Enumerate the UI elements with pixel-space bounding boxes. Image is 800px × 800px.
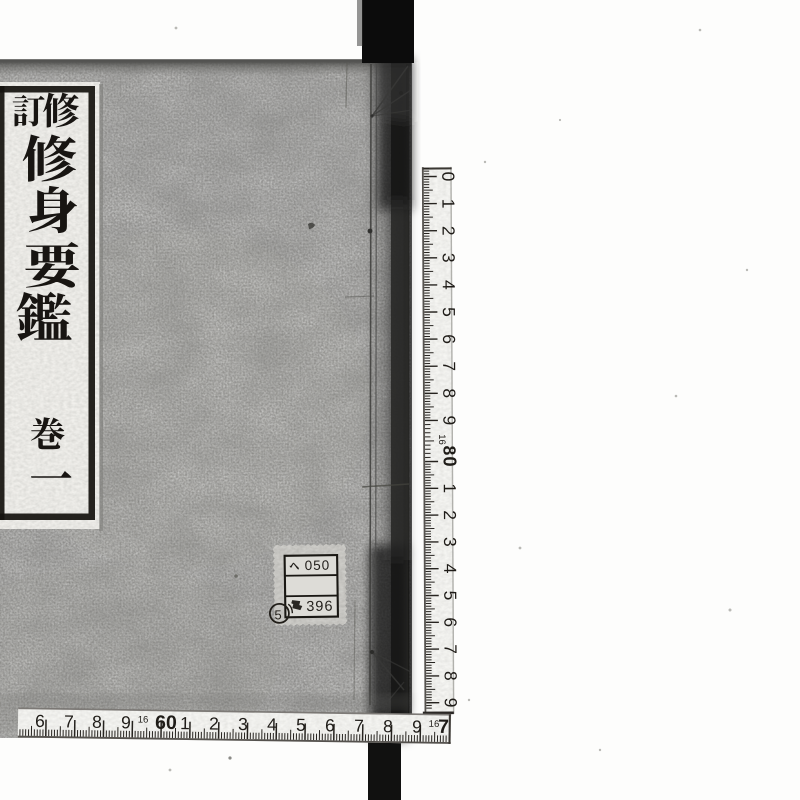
svg-text:6: 6 <box>439 334 459 344</box>
svg-text:6: 6 <box>440 617 460 627</box>
svg-text:16: 16 <box>436 434 447 445</box>
svg-text:5: 5 <box>440 591 460 601</box>
svg-text:16: 16 <box>138 714 149 725</box>
svg-text:1: 1 <box>440 483 460 493</box>
svg-text:8: 8 <box>440 446 460 456</box>
svg-text:1: 1 <box>438 199 458 209</box>
svg-text:5: 5 <box>296 715 306 735</box>
svg-text:8: 8 <box>441 671 461 681</box>
svg-text:7: 7 <box>354 716 364 736</box>
svg-text:4: 4 <box>440 564 460 574</box>
svg-text:9: 9 <box>439 415 459 425</box>
svg-text:7: 7 <box>64 711 74 731</box>
svg-text:2: 2 <box>438 226 458 236</box>
svg-text:3: 3 <box>440 537 460 547</box>
svg-text:60: 60 <box>155 712 177 734</box>
svg-text:9: 9 <box>121 712 131 732</box>
svg-text:0: 0 <box>438 172 458 182</box>
svg-text:7: 7 <box>439 361 459 371</box>
svg-text:3: 3 <box>238 714 248 734</box>
svg-text:0: 0 <box>440 456 461 466</box>
svg-text:2: 2 <box>440 510 460 520</box>
svg-text:4: 4 <box>439 280 459 290</box>
svg-text:3: 3 <box>439 253 459 263</box>
svg-text:050: 050 <box>305 558 331 573</box>
svg-text:8: 8 <box>439 388 459 398</box>
svg-text:396: 396 <box>306 599 333 615</box>
svg-text:7: 7 <box>440 644 460 654</box>
svg-text:4: 4 <box>267 714 277 734</box>
svg-text:8: 8 <box>383 716 393 736</box>
svg-text:7: 7 <box>438 716 449 738</box>
svg-text:6: 6 <box>325 715 335 735</box>
svg-text:9: 9 <box>412 717 422 737</box>
svg-text:1: 1 <box>180 713 190 733</box>
svg-text:9: 9 <box>441 698 461 708</box>
svg-text:2: 2 <box>209 714 219 734</box>
svg-text:5: 5 <box>439 307 459 317</box>
svg-text:6: 6 <box>35 711 45 731</box>
svg-text:8: 8 <box>92 712 102 732</box>
svg-text:5: 5 <box>274 607 281 622</box>
